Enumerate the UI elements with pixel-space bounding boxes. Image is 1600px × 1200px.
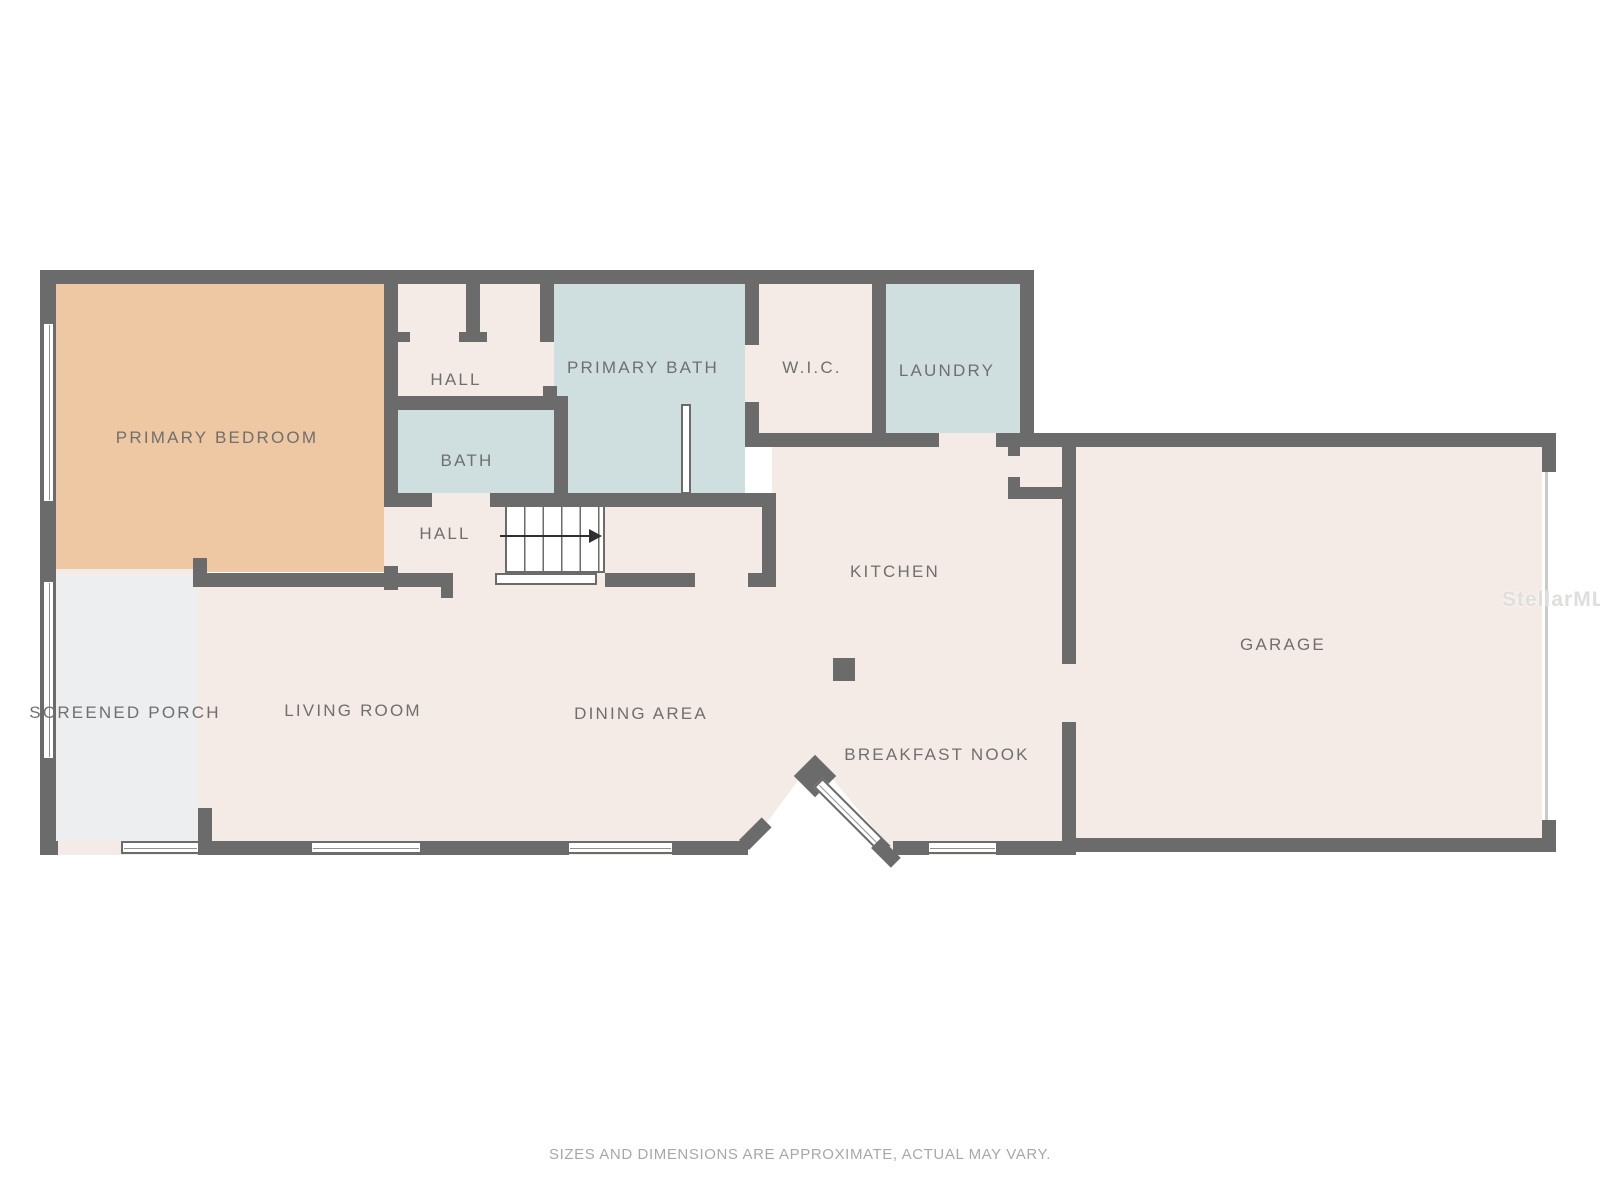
room-fill-primary-bath (554, 284, 745, 493)
room-label-kitchen: KITCHEN (850, 562, 940, 582)
wall-laundry-bottom-left (886, 433, 939, 447)
footer-disclaimer: SIZES AND DIMENSIONS ARE APPROXIMATE, AC… (0, 1146, 1600, 1163)
wall-kitchen-garage-a (1062, 433, 1076, 664)
wall-living-top (193, 573, 453, 587)
wall-bedroom-right (384, 284, 398, 500)
stairs-arrow-head (589, 529, 602, 543)
wall-garage-bottom (1062, 838, 1556, 852)
stairs-landing (495, 573, 597, 585)
porch-screen-opening (58, 841, 123, 853)
floor-plan: PRIMARY BEDROOM HALL PRIMARY BATH W.I.C.… (0, 0, 1600, 1200)
wall-bath-right (554, 410, 568, 495)
wall-laundry-right (1020, 270, 1034, 447)
wall-kitchen-garage-b (1062, 722, 1076, 842)
wall-laundry-bottom-right (996, 433, 1034, 447)
garage-door (1545, 472, 1548, 822)
room-fill-bath (398, 396, 554, 493)
wall-bottom-d (893, 841, 929, 855)
column-post (833, 658, 855, 681)
wall-bath-top (384, 396, 568, 410)
wall-bottom-c (672, 841, 748, 855)
wall-porch-divider-stub (198, 808, 212, 855)
room-label-hall-lower: HALL (419, 524, 470, 544)
room-fill-kitchen (772, 447, 1076, 573)
window-living-bottom (310, 841, 422, 854)
room-label-breakfast-nook: BREAKFAST NOOK (844, 745, 1029, 765)
wall-pantry (1008, 487, 1076, 499)
door-bath (432, 493, 490, 507)
room-label-primary-bath: PRIMARY BATH (567, 358, 719, 378)
window-dining-bottom (567, 841, 674, 854)
room-label-dining-area: DINING AREA (574, 704, 708, 724)
wall-exterior-top (40, 270, 1034, 284)
wall-living-top-end (441, 573, 453, 598)
wall-bath-top-stub (543, 386, 557, 398)
room-label-screened-porch: SCREENED PORCH (29, 703, 220, 723)
door-kitchen-garage (1062, 664, 1076, 722)
room-fill-laundry (886, 284, 1020, 433)
wall-closet-divider (466, 284, 480, 332)
wall-pantry-stub (1008, 447, 1020, 456)
window-nook-bottom (927, 841, 998, 854)
window-bedroom-left (42, 322, 55, 503)
door-wic (745, 345, 759, 402)
wall-primarybath-right-a (745, 284, 759, 345)
room-label-bath: BATH (441, 451, 494, 471)
wall-closet-stub-left (398, 332, 410, 342)
door-hall-kitchen (695, 573, 748, 587)
room-label-primary-bedroom: PRIMARY BEDROOM (116, 428, 318, 448)
wall-wic-laundry (872, 284, 886, 447)
wall-living-top-stub (193, 558, 207, 574)
wall-landing-bottom-left (605, 573, 695, 587)
wall-primarybath-bottom-left (384, 493, 432, 507)
wall-closet-divider-foot (459, 332, 487, 342)
window-porch-bottom (121, 841, 200, 854)
wall-landing-bottom-right (748, 573, 776, 587)
stellar-mls-watermark: StellarMLS (1502, 588, 1600, 612)
door-primary-bedroom (384, 500, 398, 566)
wall-hall-primarybath (540, 284, 554, 337)
wall-bottom-a (40, 841, 58, 855)
porch-bedroom-opening (56, 569, 198, 575)
wall-bottom-e (996, 841, 1076, 855)
window-porch-left (42, 580, 55, 760)
room-label-hall-upper: HALL (430, 370, 481, 390)
wall-wic-bottom (745, 433, 886, 447)
room-label-living-room: LIVING ROOM (284, 701, 422, 721)
wall-garage-top (1034, 433, 1556, 447)
room-label-wic: W.I.C. (782, 358, 841, 378)
wall-garage-right-top (1542, 447, 1556, 472)
room-label-laundry: LAUNDRY (899, 361, 995, 381)
stairs-arrow (500, 535, 590, 537)
shower-divider (681, 404, 691, 494)
room-label-garage: GARAGE (1240, 635, 1326, 655)
door-laundry (939, 433, 996, 447)
